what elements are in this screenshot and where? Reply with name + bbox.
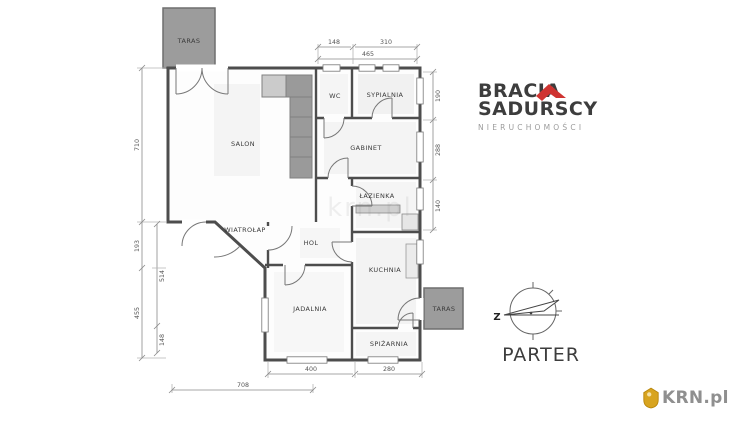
dim-label: 140 [435,200,442,212]
door-arc [214,246,240,257]
logo-line2: SADURSCY [478,100,618,119]
window [359,65,375,71]
window [417,132,423,162]
dim-line-bottom [172,374,422,390]
krn-shield [644,388,658,408]
room-label-kuchnia: KUCHNIA [369,266,401,274]
window [262,298,268,332]
floorplan-page: krn.pl TARAS SALON WC SYPIALNIA GABINET … [0,0,740,417]
room-label-gabinet: GABINET [350,144,382,152]
room-label-hol: HOL [304,239,319,247]
room-label-lazienka: ŁAZIENKA [358,192,394,200]
dim-label: 710 [134,139,141,151]
dim-label: 708 [237,382,249,389]
dim-label: 148 [159,334,166,346]
dim-label: 280 [383,366,395,373]
room-label-taras-top: TARAS [177,37,201,45]
window [417,240,423,264]
dim-label: 193 [134,240,141,252]
krn-watermark: KRN.pl [642,387,729,409]
dim-label: 190 [435,90,442,102]
stair-landing [262,75,286,97]
dim-label: 148 [328,39,340,46]
window [417,188,423,210]
window [368,357,398,363]
dim-label: 465 [362,51,374,58]
room-label-wc: WC [329,92,341,100]
dim-label: 288 [435,144,442,156]
dim-label: 455 [134,307,141,319]
floorplan-svg: krn.pl TARAS SALON WC SYPIALNIA GABINET … [0,0,740,417]
room-label-jadalnia: JADALNIA [292,305,327,313]
window [417,78,423,104]
dim-label: 310 [380,39,392,46]
dim-label: 400 [305,366,317,373]
dim-label: 514 [159,270,166,282]
room-label-sypialnia: SYPIALNIA [367,91,404,99]
logo-line1-wrap: BRACIA [478,82,618,100]
stair-block [286,75,312,97]
kitchen-appliance [406,244,418,278]
window [287,357,327,363]
compass-center-dot [530,312,533,315]
agency-logo: BRACIA SADURSCY NIERUCHOMOŚCI [478,82,618,132]
room-label-spizarnia: SPIŻARNIA [370,339,408,348]
room-label-taras-right: TARAS [432,305,456,313]
room-label-wiatrolap: WIATROŁAP [224,226,266,234]
door-arc [182,222,206,246]
logo-roof-icon [534,82,568,102]
floor-label: PARTER [502,344,580,366]
compass-west-label: Z [493,312,500,323]
window [323,65,340,71]
dim-line-left [142,68,157,358]
room-label-salon: SALON [231,140,255,148]
floor-shade [214,84,260,176]
krn-icon [642,387,660,409]
compass: Z [493,282,562,340]
opening [417,298,424,320]
krn-label: KRN.pl [662,388,729,408]
krn-shield-highlight [647,392,651,396]
logo-line3: NIERUCHOMOŚCI [478,123,618,132]
dim-ext-left [137,68,166,358]
window [383,65,399,71]
